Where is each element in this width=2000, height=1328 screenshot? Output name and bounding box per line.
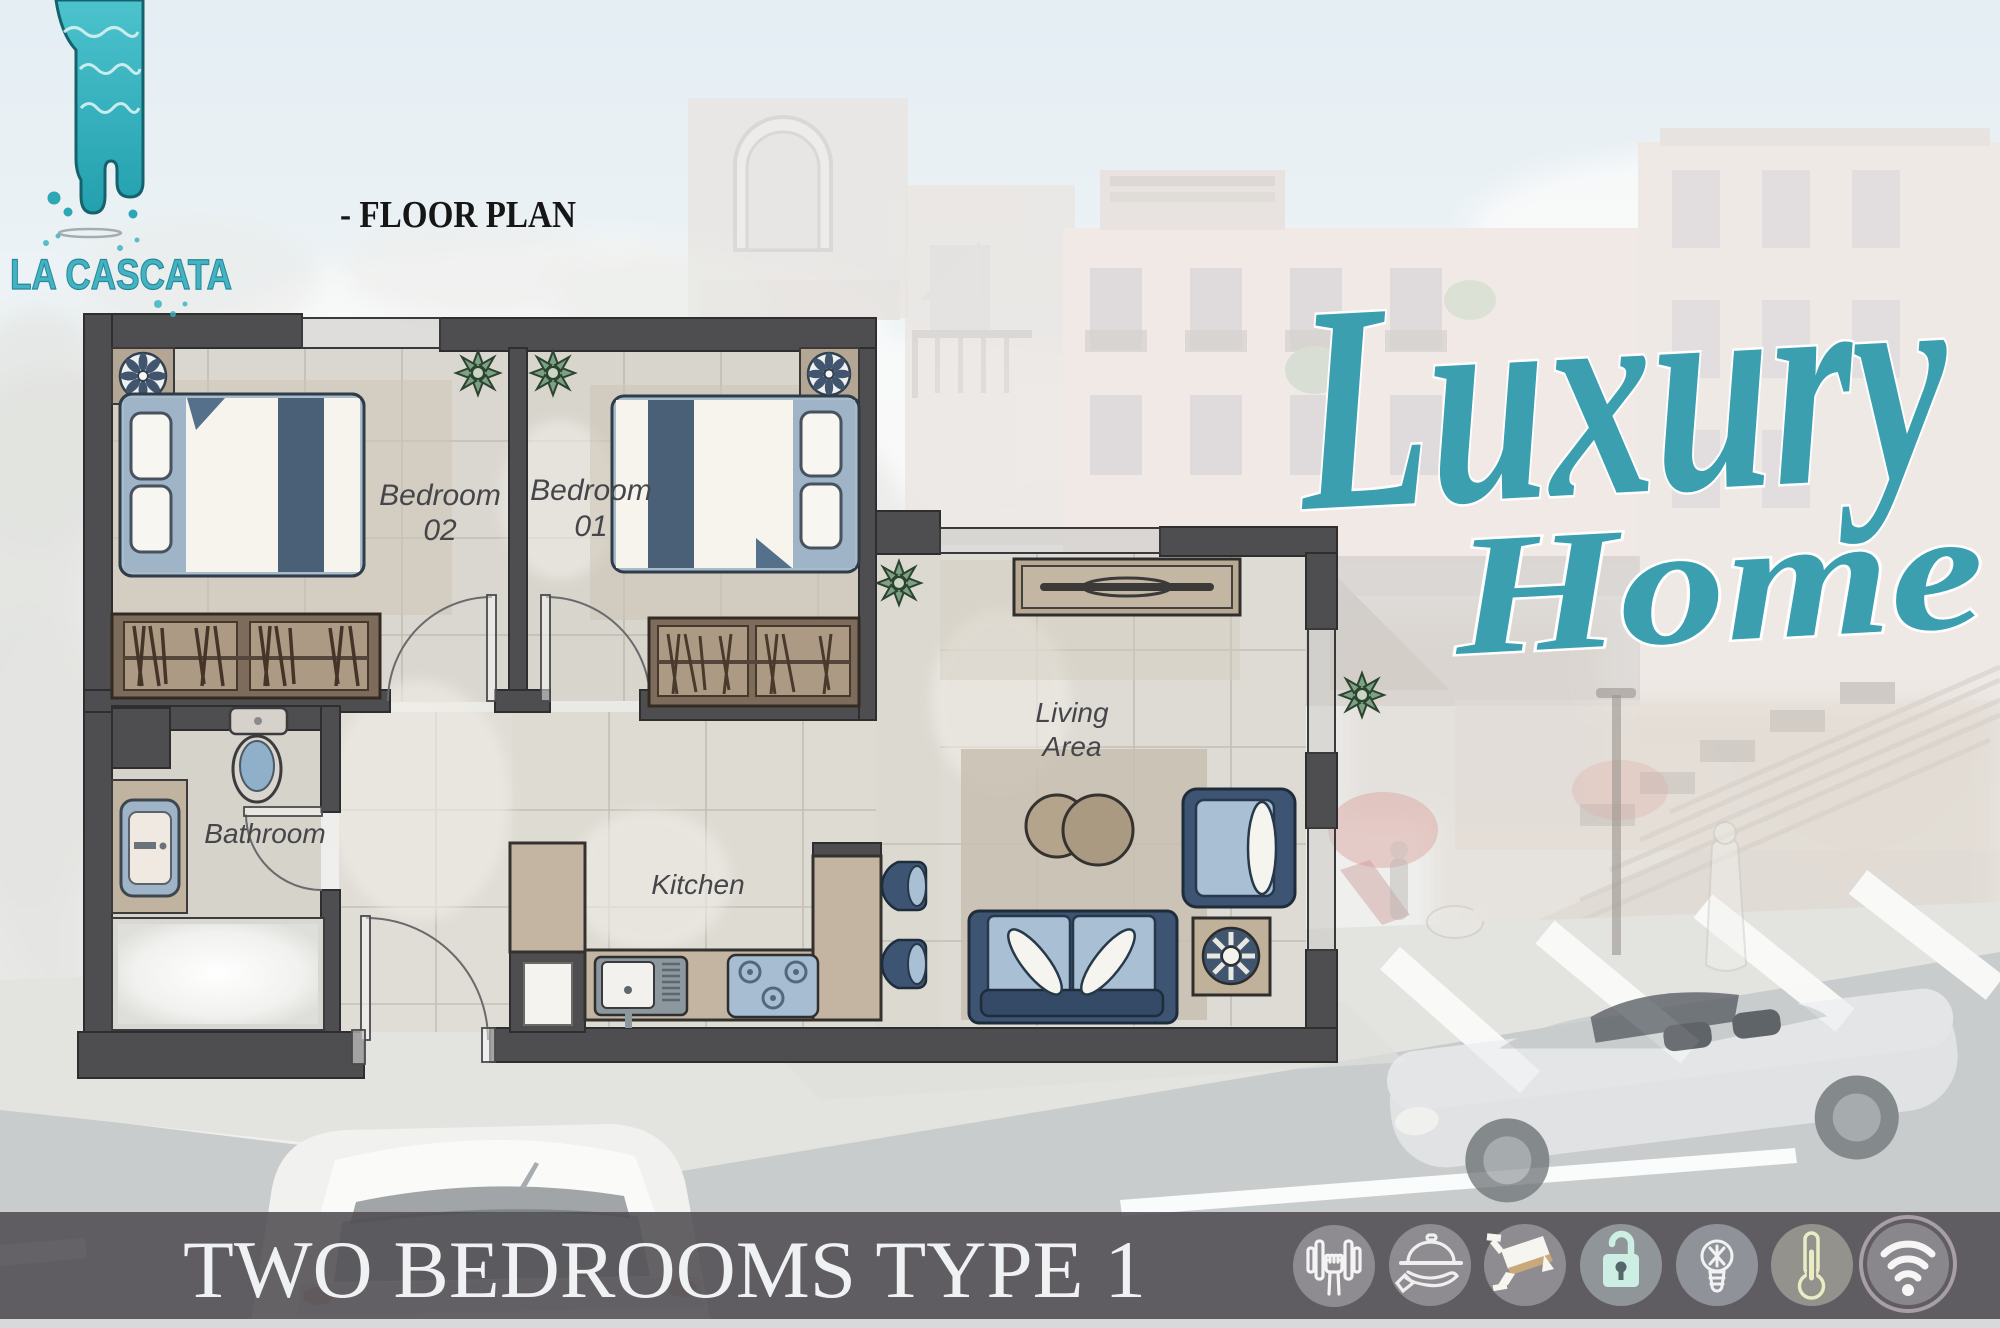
svg-text:LA CASCATA: LA CASCATA <box>10 251 232 299</box>
svg-text:- FLOOR PLAN: - FLOOR PLAN <box>340 194 576 236</box>
svg-text:Bathroom: Bathroom <box>204 818 325 849</box>
svg-text:Living: Living <box>1035 697 1109 728</box>
svg-text:01: 01 <box>574 510 607 543</box>
svg-text:02: 02 <box>423 514 457 547</box>
svg-text:Bedroom: Bedroom <box>530 474 652 507</box>
svg-text:Kitchen: Kitchen <box>651 869 744 900</box>
svg-text:Area: Area <box>1040 731 1101 762</box>
svg-text:TWO BEDROOMS TYPE 1: TWO BEDROOMS TYPE 1 <box>183 1224 1146 1315</box>
svg-text:Bedroom: Bedroom <box>379 479 501 512</box>
svg-text:Home: Home <box>1447 474 1989 692</box>
